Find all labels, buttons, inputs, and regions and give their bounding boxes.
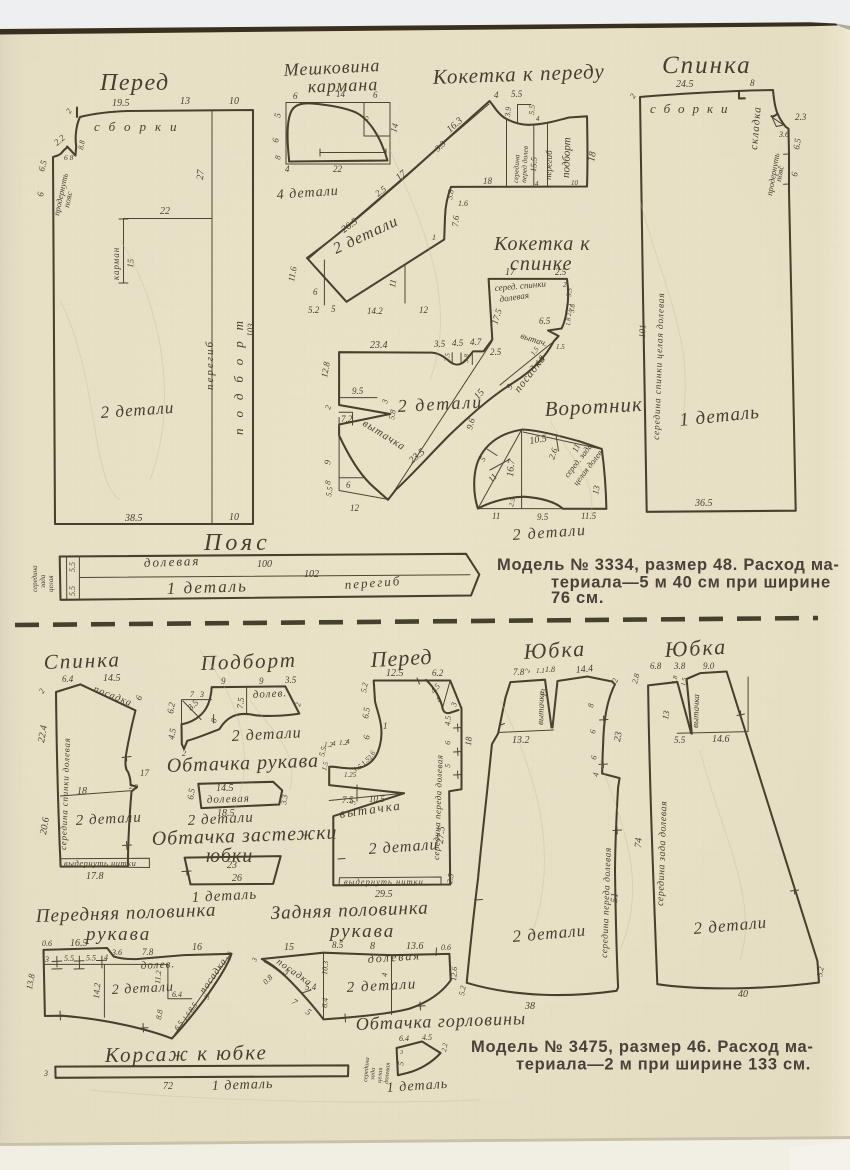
svg-text:сборки: сборки (650, 101, 736, 116)
svg-text:4.5: 4.5 (166, 727, 178, 740)
svg-text:5.8: 5.8 (387, 409, 398, 420)
svg-text:36.5: 36.5 (694, 498, 713, 509)
svg-text:10.3: 10.3 (320, 960, 330, 975)
svg-text:3.6: 3.6 (111, 948, 122, 957)
svg-text:0.6: 0.6 (441, 943, 451, 952)
svg-text:2: 2 (563, 281, 567, 289)
svg-text:10: 10 (229, 96, 239, 107)
svg-text:1.6: 1.6 (458, 199, 468, 208)
svg-text:долевая: долевая (144, 553, 201, 570)
svg-text:4: 4 (535, 180, 539, 188)
svg-text:11: 11 (492, 511, 500, 521)
svg-text:рукава: рукава (328, 921, 395, 942)
svg-text:22: 22 (333, 164, 343, 174)
svg-text:6.8: 6.8 (650, 661, 662, 671)
svg-text:6: 6 (373, 90, 378, 100)
svg-text:6.2: 6.2 (165, 701, 177, 714)
svg-text:18: 18 (463, 736, 474, 746)
svg-text:7.2: 7.2 (341, 414, 353, 424)
svg-text:подборт: подборт (231, 310, 246, 435)
svg-text:23: 23 (612, 731, 625, 743)
svg-text:102: 102 (304, 569, 319, 580)
svg-text:3.3: 3.3 (279, 794, 290, 806)
svg-text:подборт: подборт (560, 137, 573, 178)
svg-text:вытачка: вытачка (535, 690, 546, 725)
svg-text:6 8: 6 8 (64, 153, 74, 162)
svg-text:5.2: 5.2 (457, 985, 468, 996)
svg-text:4: 4 (332, 740, 336, 748)
svg-text:Модель № 3475, размер 46. Расх: Модель № 3475, размер 46. Расход ма- (471, 1038, 814, 1056)
svg-text:76 см.: 76 см. (551, 589, 604, 607)
svg-text:2.3: 2.3 (795, 112, 807, 122)
svg-text:15.5: 15.5 (528, 157, 539, 172)
svg-text:17: 17 (505, 267, 516, 278)
svg-text:3: 3 (399, 1050, 403, 1056)
svg-text:5.5: 5.5 (324, 486, 335, 497)
svg-text:3.8: 3.8 (445, 189, 456, 201)
svg-text:Кокетка к: Кокетка к (493, 233, 591, 255)
svg-text:4: 4 (104, 953, 108, 962)
svg-text:23: 23 (227, 860, 237, 871)
svg-text:зада: зада (39, 574, 47, 589)
svg-text:1.8: 1.8 (545, 665, 555, 674)
svg-text:4: 4 (346, 738, 350, 746)
svg-text:3.8: 3.8 (462, 353, 471, 364)
svg-text:18: 18 (586, 151, 599, 163)
svg-text:7.5: 7.5 (235, 697, 246, 710)
svg-text:4: 4 (380, 972, 389, 977)
svg-text:6: 6 (443, 740, 452, 745)
svg-text:6: 6 (346, 480, 351, 490)
svg-text:1: 1 (432, 233, 436, 242)
svg-text:1 деталь: 1 деталь (166, 576, 248, 598)
svg-text:6.2: 6.2 (432, 668, 444, 678)
svg-text:5.5: 5.5 (674, 735, 686, 745)
svg-text:6.5: 6.5 (539, 316, 551, 326)
svg-text:2.5: 2.5 (490, 347, 502, 357)
svg-text:11: 11 (387, 278, 398, 288)
svg-text:9.0: 9.0 (703, 661, 715, 671)
svg-text:Модель № 3334, размер 48. Расх: Модель № 3334, размер 48. Расход ма- (497, 556, 840, 574)
svg-text:26: 26 (232, 873, 242, 884)
svg-text:72: 72 (163, 1081, 173, 1092)
svg-text:40: 40 (738, 989, 748, 1000)
svg-text:3: 3 (43, 1069, 48, 1078)
svg-text:долевая: долевая (207, 793, 250, 806)
svg-text:14.2: 14.2 (91, 982, 102, 999)
svg-text:2.5: 2.5 (555, 267, 567, 277)
svg-text:карман: карман (111, 247, 121, 280)
svg-text:4: 4 (536, 115, 540, 123)
svg-text:1 деталь: 1 деталь (212, 1077, 274, 1094)
svg-text:4.5: 4.5 (422, 1033, 432, 1042)
svg-text:12: 12 (350, 503, 360, 513)
svg-text:5.2: 5.2 (815, 966, 826, 977)
svg-text:5: 5 (443, 763, 452, 768)
svg-text:12.6: 12.6 (449, 966, 459, 981)
svg-text:рукава: рукава (84, 924, 151, 945)
svg-text:3.5: 3.5 (284, 675, 297, 685)
svg-text:Спинка: Спинка (43, 647, 121, 674)
svg-text:5.5: 5.5 (511, 89, 523, 99)
svg-text:6: 6 (313, 287, 318, 297)
svg-text:18: 18 (77, 786, 87, 797)
svg-text:16.5: 16.5 (70, 938, 88, 949)
svg-text:долев.: долев. (253, 687, 288, 701)
svg-text:2.5: 2.5 (445, 873, 456, 884)
svg-text:6.4: 6.4 (62, 674, 74, 684)
svg-text:38.5: 38.5 (124, 513, 143, 524)
svg-text:вытачка: вытачка (690, 693, 701, 728)
svg-text:перегиб: перегиб (204, 340, 216, 390)
svg-text:7.8: 7.8 (513, 667, 525, 677)
svg-text:5.2: 5.2 (359, 682, 370, 693)
svg-text:Юбка: Юбка (522, 636, 587, 664)
svg-text:Юбка: Юбка (663, 634, 728, 662)
svg-text:13: 13 (180, 96, 190, 107)
svg-text:15: 15 (284, 942, 294, 953)
svg-text:101: 101 (637, 324, 647, 338)
svg-text:15: 15 (125, 258, 136, 268)
svg-text:8.8: 8.8 (76, 139, 87, 150)
svg-text:8: 8 (370, 941, 375, 952)
svg-text:1.5: 1.5 (556, 343, 565, 351)
svg-text:1.1: 1.1 (536, 667, 545, 675)
svg-text:16: 16 (192, 942, 202, 953)
svg-text:14.5: 14.5 (103, 673, 121, 684)
svg-text:74: 74 (633, 837, 645, 848)
svg-text:9.5: 9.5 (352, 386, 364, 396)
svg-text:8.5: 8.5 (332, 940, 344, 950)
svg-text:Пояс: Пояс (203, 530, 271, 556)
svg-text:выдернуть нитки: выдернуть нитки (64, 858, 136, 868)
svg-text:3.8: 3.8 (673, 661, 686, 671)
svg-text:Подборт: Подборт (199, 648, 297, 675)
svg-text:7.8: 7.8 (142, 947, 154, 957)
svg-text:2.2: 2.2 (129, 783, 138, 791)
svg-text:5.2: 5.2 (308, 305, 320, 315)
svg-text:23.4: 23.4 (370, 340, 388, 351)
svg-text:4: 4 (285, 164, 290, 174)
svg-text:24.5: 24.5 (676, 79, 694, 90)
svg-text:17: 17 (140, 768, 150, 778)
svg-text:100: 100 (257, 559, 272, 570)
svg-text:долев.: долев. (141, 958, 176, 972)
svg-text:14.4: 14.4 (575, 663, 594, 676)
svg-text:19.5: 19.5 (112, 98, 130, 109)
svg-text:сборки: сборки (94, 119, 186, 134)
svg-text:7.6: 7.6 (450, 215, 461, 228)
svg-text:4.5: 4.5 (452, 338, 464, 348)
svg-text:выдернуть нитки: выдернуть нитки (344, 877, 424, 887)
svg-text:9: 9 (259, 676, 264, 686)
svg-text:целая: целая (47, 576, 55, 593)
svg-text:11.5: 11.5 (581, 511, 597, 521)
svg-text:5.5: 5.5 (68, 562, 77, 572)
svg-text:14.6: 14.6 (712, 734, 730, 745)
svg-text:12.5: 12.5 (386, 668, 404, 679)
svg-text:14.2: 14.2 (367, 306, 383, 316)
svg-text:14: 14 (336, 89, 346, 99)
svg-text:2.5: 2.5 (443, 352, 452, 362)
svg-text:8.8: 8.8 (154, 1009, 165, 1020)
svg-text:4.7: 4.7 (470, 337, 482, 347)
svg-text:5.5: 5.5 (68, 586, 77, 596)
svg-text:17.8: 17.8 (86, 871, 104, 882)
svg-text:середина: середина (31, 565, 39, 592)
svg-text:6.5: 6.5 (360, 706, 372, 719)
svg-text:3: 3 (199, 690, 204, 699)
svg-text:9.5: 9.5 (537, 512, 549, 522)
svg-text:16.7: 16.7 (505, 458, 518, 477)
svg-text:6.5: 6.5 (791, 137, 803, 150)
svg-text:10: 10 (571, 179, 579, 187)
svg-text:13.2: 13.2 (512, 735, 530, 746)
svg-text:10: 10 (229, 512, 239, 523)
svg-text:3: 3 (44, 955, 49, 964)
svg-text:6.5: 6.5 (185, 787, 197, 800)
svg-text:8: 8 (750, 78, 755, 88)
svg-text:0.6: 0.6 (42, 939, 52, 948)
svg-text:5.5: 5.5 (64, 954, 74, 963)
svg-text:12: 12 (419, 305, 429, 315)
svg-text:териала—2 м при ширине 133 см.: териала—2 м при ширине 133 см. (516, 1056, 811, 1074)
svg-text:5: 5 (331, 304, 336, 314)
svg-text:Перед: Перед (99, 70, 170, 96)
svg-text:Корсаж к юбке: Корсаж к юбке (104, 1040, 268, 1067)
svg-text:18: 18 (483, 176, 493, 186)
svg-text:4.5: 4.5 (443, 715, 453, 726)
svg-text:перегиб: перегиб (543, 150, 554, 180)
svg-text:6: 6 (293, 91, 298, 101)
svg-text:22: 22 (160, 206, 170, 217)
svg-text:4: 4 (494, 90, 499, 100)
svg-text:Спинка: Спинка (662, 52, 752, 79)
svg-text:5.5: 5.5 (527, 104, 537, 115)
svg-text:5.5: 5.5 (86, 954, 96, 963)
svg-text:1: 1 (383, 721, 388, 731)
svg-text:Воротник: Воротник (544, 392, 643, 421)
svg-text:6.4: 6.4 (320, 997, 330, 1008)
svg-text:3.6: 3.6 (778, 130, 789, 139)
svg-text:103: 103 (245, 323, 256, 338)
svg-text:6.4: 6.4 (399, 1034, 409, 1043)
svg-text:3.9: 3.9 (503, 106, 513, 118)
